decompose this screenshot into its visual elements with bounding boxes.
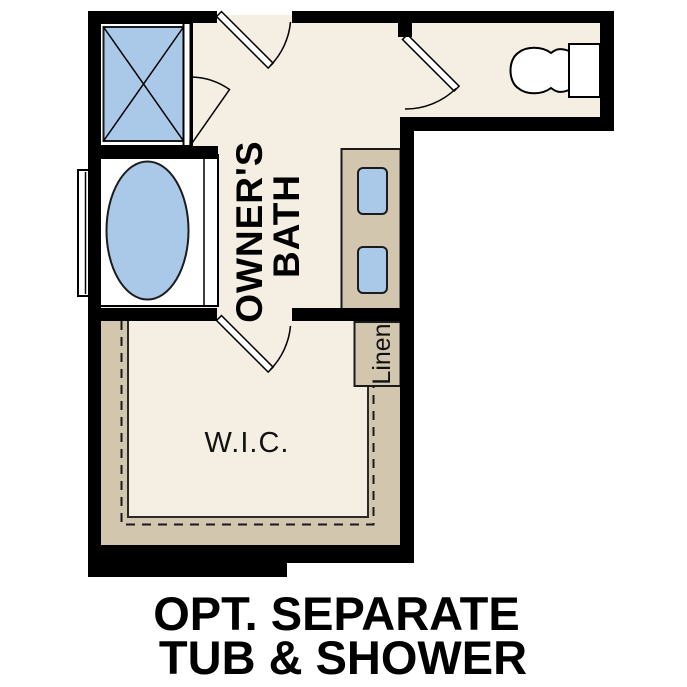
caption-line2: TUB & SHOWER (159, 631, 527, 684)
wall-shower-tub (88, 146, 218, 159)
shower-glass-panel (184, 23, 191, 146)
wall-top-left (88, 11, 217, 23)
toilet-icon (511, 44, 601, 97)
wall-toilet-door-jamb (398, 23, 412, 37)
tub-basin (107, 162, 189, 300)
sink-icon-1 (358, 168, 387, 214)
wall-top-right (292, 11, 614, 23)
owners-bath-label-line1: OWNER'S (229, 140, 270, 322)
wall-toilet-right (600, 11, 614, 131)
owners-bath-label-line2: BATH (266, 174, 307, 278)
wall-bottom (88, 545, 414, 563)
floor-plan-canvas: OWNER'S BATH W.I.C. Linen OPT. SEPARATE … (0, 0, 687, 687)
wall-right (400, 117, 414, 563)
wall-left (88, 11, 101, 577)
floor-plan: OWNER'S BATH W.I.C. Linen OPT. SEPARATE … (0, 0, 687, 687)
wall-toilet-bottom (400, 117, 614, 131)
toilet-bowl (511, 48, 570, 94)
vanity-counter (342, 149, 401, 311)
wall-tub-wic-right (292, 308, 412, 321)
wall-bottom-left-step (88, 563, 287, 577)
toilet-tank (569, 44, 600, 97)
sink-icon-2 (358, 247, 387, 293)
linen-label: Linen (368, 323, 396, 384)
wic-label: W.I.C. (205, 427, 290, 459)
wall-tub-wic-left (88, 308, 217, 321)
caption: OPT. SEPARATE TUB & SHOWER (153, 587, 533, 684)
